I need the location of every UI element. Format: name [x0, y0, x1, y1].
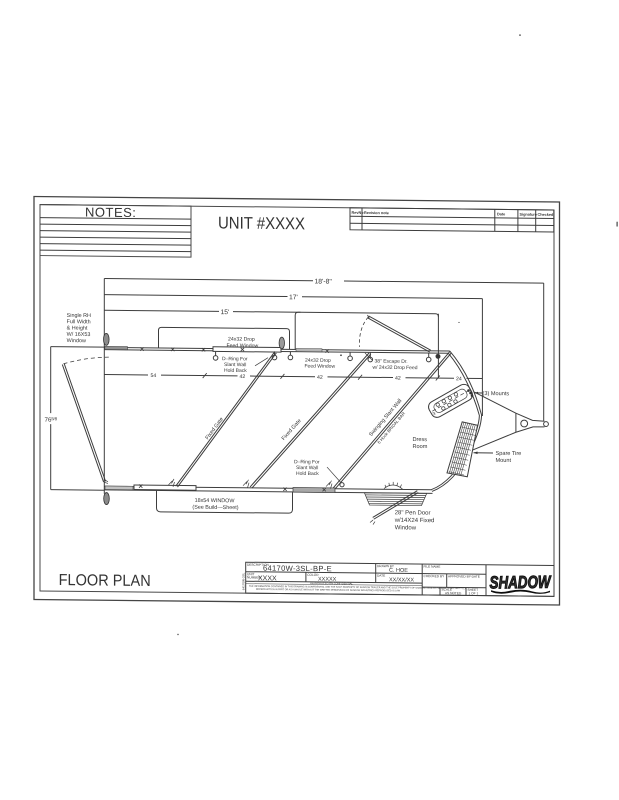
svg-text:18x54 WINDOW: 18x54 WINDOW [195, 498, 236, 504]
svg-text:Date: Date [497, 212, 505, 216]
svg-text:28" Pen Door: 28" Pen Door [395, 510, 431, 516]
svg-text:15': 15' [221, 309, 230, 316]
svg-text:NOTES:: NOTES: [85, 205, 136, 221]
svg-text:Feed Window: Feed Window [227, 343, 259, 349]
svg-text:CHECKED BY: CHECKED BY [424, 574, 446, 578]
svg-text:Feed Window: Feed Window [305, 363, 336, 369]
svg-text:Window: Window [67, 338, 86, 344]
svg-text:765⁄8: 765⁄8 [45, 416, 58, 424]
svg-text:RevNo: RevNo [352, 211, 365, 215]
svg-text:1 OF 1: 1 OF 1 [469, 591, 479, 595]
svg-text:Hold Back: Hold Back [224, 368, 247, 374]
svg-text:Fixed Gate: Fixed Gate [281, 418, 303, 442]
svg-text:UNIT #XXXX: UNIT #XXXX [218, 213, 305, 233]
svg-text:& Height: & Height [67, 325, 88, 331]
svg-text:Mount: Mount [496, 458, 512, 464]
svg-text:Dress: Dress [413, 437, 428, 443]
svg-text:XX/XX/XX: XX/XX/XX [389, 577, 414, 583]
svg-text:Revision note: Revision note [364, 211, 389, 215]
svg-text:64170W-3SL: 64170W-3SL [242, 572, 246, 590]
svg-text:Spare Tire: Spare Tire [496, 451, 522, 457]
svg-text:DATE: DATE [377, 574, 385, 578]
svg-text:24: 24 [456, 376, 462, 382]
svg-text:24x32 Drop: 24x32 Drop [228, 337, 255, 343]
svg-text:APPROVED BY-DATE: APPROVED BY-DATE [448, 574, 480, 578]
svg-text:42: 42 [317, 375, 323, 381]
svg-text:FILE NAME: FILE NAME [424, 565, 441, 569]
svg-text:42: 42 [395, 376, 401, 382]
svg-text:Full Width: Full Width [67, 319, 91, 325]
svg-text:Room: Room [413, 444, 428, 450]
svg-text:Single RH: Single RH [67, 313, 91, 319]
svg-text:Signature: Signature [520, 213, 538, 217]
svg-text:54: 54 [151, 373, 157, 379]
svg-text:18'-8": 18'-8" [315, 278, 333, 285]
svg-text:Checked: Checked [538, 213, 555, 217]
svg-text:w/14X24 Fixed: w/14X24 Fixed [394, 518, 435, 524]
svg-text:(3) Mounts: (3) Mounts [482, 391, 509, 397]
svg-text:Window: Window [395, 525, 417, 531]
svg-text:64170W-3SL-BP-E: 64170W-3SL-BP-E [263, 564, 332, 574]
svg-text:(See Build—Sheet): (See Build—Sheet) [192, 505, 238, 511]
svg-text:REPRODUCED ON CONFIDENTIAL: REPRODUCED ON CONFIDENTIAL [310, 581, 353, 585]
svg-text:42: 42 [240, 374, 246, 380]
svg-text:17': 17' [289, 294, 298, 301]
svg-text:W/ 16X53: W/ 16X53 [67, 332, 91, 338]
svg-text:SHADOW: SHADOW [489, 572, 552, 593]
svg-text:w/ 24x32 Drop Feed: w/ 24x32 Drop Feed [373, 365, 418, 371]
svg-text:Fixed Gate: Fixed Gate [205, 416, 226, 441]
svg-text:XXXX: XXXX [258, 575, 277, 582]
svg-text:AS NOTED: AS NOTED [445, 591, 462, 595]
svg-text:C. HOE: C. HOE [389, 568, 408, 574]
svg-text:Hold Back: Hold Back [296, 471, 319, 477]
svg-text:FLOOR PLAN: FLOOR PLAN [59, 572, 151, 590]
